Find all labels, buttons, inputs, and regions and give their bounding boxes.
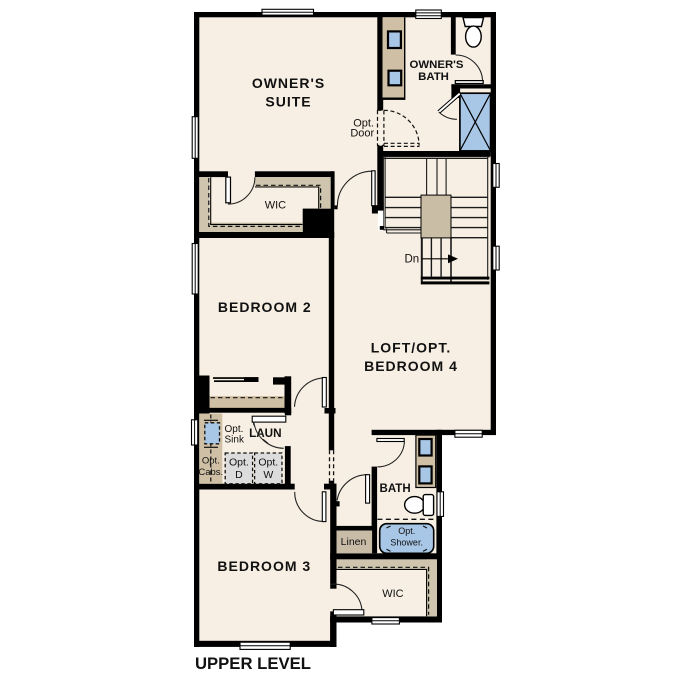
svg-text:Opt.: Opt. <box>202 455 220 466</box>
svg-text:Opt.: Opt. <box>398 526 415 536</box>
svg-text:BATH: BATH <box>380 483 411 495</box>
svg-text:UPPER LEVEL: UPPER LEVEL <box>195 654 311 673</box>
svg-text:D: D <box>235 469 243 481</box>
svg-text:Opt.: Opt. <box>225 424 244 435</box>
svg-text:Cabs.: Cabs. <box>198 467 223 478</box>
svg-text:BEDROOM 2: BEDROOM 2 <box>218 299 312 315</box>
svg-text:SUITE: SUITE <box>265 93 311 109</box>
svg-text:WIC: WIC <box>382 588 403 600</box>
svg-text:Door: Door <box>350 128 374 140</box>
svg-text:Linen: Linen <box>341 536 367 548</box>
svg-text:BATH: BATH <box>418 71 449 83</box>
svg-text:LAUN: LAUN <box>249 427 281 440</box>
svg-text:W: W <box>263 469 273 481</box>
svg-text:LOFT/OPT.: LOFT/OPT. <box>371 340 452 356</box>
svg-text:BEDROOM 4: BEDROOM 4 <box>364 358 458 374</box>
svg-text:Dn: Dn <box>405 254 420 266</box>
svg-text:BEDROOM 3: BEDROOM 3 <box>217 558 311 574</box>
svg-text:Opt.: Opt. <box>258 456 278 468</box>
svg-text:OWNER'S: OWNER'S <box>252 75 325 91</box>
svg-text:WIC: WIC <box>265 199 286 211</box>
svg-text:OWNER'S: OWNER'S <box>410 59 464 71</box>
svg-text:Sink: Sink <box>225 435 245 446</box>
svg-text:Shower.: Shower. <box>390 537 423 547</box>
svg-text:Opt.: Opt. <box>229 456 249 468</box>
